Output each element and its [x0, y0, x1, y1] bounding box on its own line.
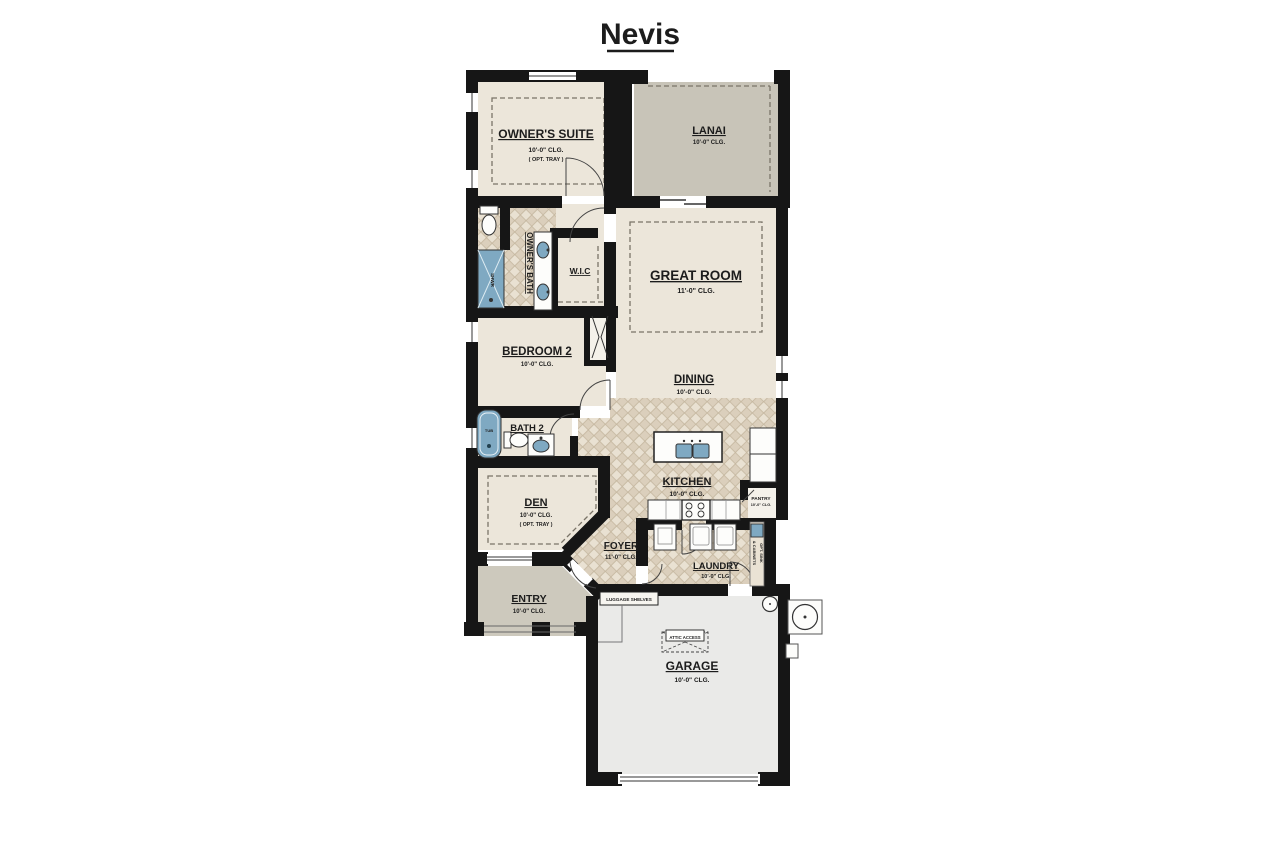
lanai-label: LANAI	[692, 125, 726, 137]
den-window	[487, 554, 532, 564]
great-room-label: GREAT ROOM	[650, 268, 742, 283]
bath2-vanity	[528, 434, 554, 456]
floor-plan-canvas: Nevis OWNER'S SUITE 10'-0" CLG. ( OPT. T…	[0, 0, 1280, 854]
wic-label: W.I.C	[570, 266, 591, 276]
bedroom2-label: BEDROOM 2	[502, 346, 572, 358]
owners-bath-label: OWNER'S BATH	[525, 232, 534, 294]
utility-meter	[786, 644, 798, 658]
toilet-bath2	[504, 432, 528, 448]
den-label: DEN	[524, 497, 547, 509]
room-wic	[556, 204, 604, 318]
kitchen-label: KITCHEN	[663, 476, 712, 488]
opt-sink-label-2: & CABINETS	[752, 541, 757, 566]
room-lanai	[634, 82, 778, 196]
owners-suite-note: ( OPT. TRAY )	[529, 157, 564, 163]
pantry-clg: 10'-0" CLG.	[751, 503, 771, 507]
lanai-clg: 10'-0" CLG.	[693, 140, 726, 146]
kitchen-counter	[648, 500, 740, 520]
room-great-dining	[616, 208, 776, 400]
great-room-clg: 11'-0" CLG.	[677, 288, 714, 295]
pantry-label: PANTRY	[751, 496, 771, 502]
kitchen-clg: 10'-0" CLG.	[670, 491, 705, 498]
owners-vanity	[534, 232, 552, 310]
attic-access-label: ATTIC ACCESS	[669, 635, 700, 640]
laundry-label: LAUNDRY	[693, 561, 740, 572]
foyer-label: FOYER	[604, 541, 639, 552]
owners-suite-label: OWNER'S SUITE	[498, 127, 594, 141]
opt-sink-label-1: OPT. SINK	[759, 543, 764, 563]
tub-label: TUB	[485, 428, 493, 433]
den-clg: 10'-0" CLG.	[520, 513, 553, 519]
dining-label: DINING	[674, 374, 714, 386]
dining-clg: 10'-0" CLG.	[677, 389, 712, 396]
garage-label: GARAGE	[666, 659, 719, 673]
bath2-label: BATH 2	[510, 423, 544, 434]
ac-condenser-pad	[788, 600, 822, 634]
plan-title: Nevis	[600, 18, 680, 51]
foyer-clg: 11'-0" CLG.	[605, 555, 637, 561]
den-note: ( OPT. TRAY )	[520, 522, 553, 528]
kitchen-island	[654, 432, 722, 462]
garage-door	[618, 774, 760, 784]
garage-clg: 10'-0" CLG.	[675, 677, 710, 684]
entry-clg: 10'-0" CLG.	[513, 609, 546, 615]
refrigerator	[750, 454, 776, 482]
bedroom2-clg: 10'-0" CLG.	[521, 362, 554, 368]
hall-strip	[578, 418, 610, 456]
floor-plan-page: Nevis OWNER'S SUITE 10'-0" CLG. ( OPT. T…	[0, 0, 1280, 854]
bathtub	[477, 410, 501, 458]
luggage-shelves-label: LUGGAGE SHELVES	[606, 597, 652, 602]
laundry-sink	[751, 524, 763, 537]
lanai-slider-door	[660, 197, 706, 207]
entry-label: ENTRY	[511, 593, 546, 605]
shower-label: SHWR	[490, 273, 495, 287]
kitchen-wall-counter	[750, 428, 776, 482]
laundry-units	[654, 524, 736, 550]
room-garage	[598, 596, 778, 778]
laundry-clg: 10'-0" CLG.	[701, 574, 731, 580]
owners-suite-clg: 10'-0" CLG.	[529, 147, 564, 154]
range	[682, 500, 710, 520]
water-heater	[763, 597, 778, 612]
toilet-owners-bath	[480, 206, 498, 235]
